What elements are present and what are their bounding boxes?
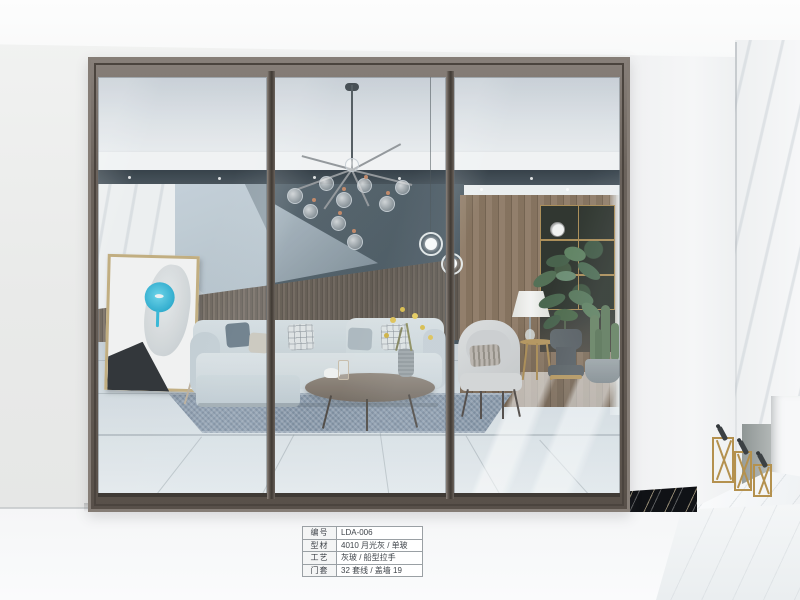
spec-row-profile: 型材 4010 月光灰 / 单玻 (303, 539, 423, 552)
gold-lantern-large (712, 437, 734, 483)
spec-label: 型材 (303, 539, 337, 552)
door-frame-inner-lip (94, 63, 624, 506)
spec-row-code: 编号 LDA-006 (303, 527, 423, 540)
spec-value: 32 套线 / 盖墙 19 (337, 564, 423, 577)
gold-lantern-small (753, 464, 772, 497)
spec-value: 灰玻 / 船型拉手 (337, 552, 423, 565)
spec-label: 门套 (303, 564, 337, 577)
spec-label: 工艺 (303, 552, 337, 565)
spec-value: 4010 月光灰 / 单玻 (337, 539, 423, 552)
spec-value: LDA-006 (337, 527, 423, 540)
spec-table: 编号 LDA-006 型材 4010 月光灰 / 单玻 工艺 灰玻 / 船型拉手… (302, 526, 423, 577)
spec-row-casing: 门套 32 套线 / 盖墙 19 (303, 564, 423, 577)
spec-row-craft: 工艺 灰玻 / 船型拉手 (303, 552, 423, 565)
sliding-door-frame (88, 57, 630, 512)
spec-label: 编号 (303, 527, 337, 540)
product-showcase: 编号 LDA-006 型材 4010 月光灰 / 单玻 工艺 灰玻 / 船型拉手… (0, 0, 800, 600)
gold-lantern-medium (734, 451, 752, 491)
